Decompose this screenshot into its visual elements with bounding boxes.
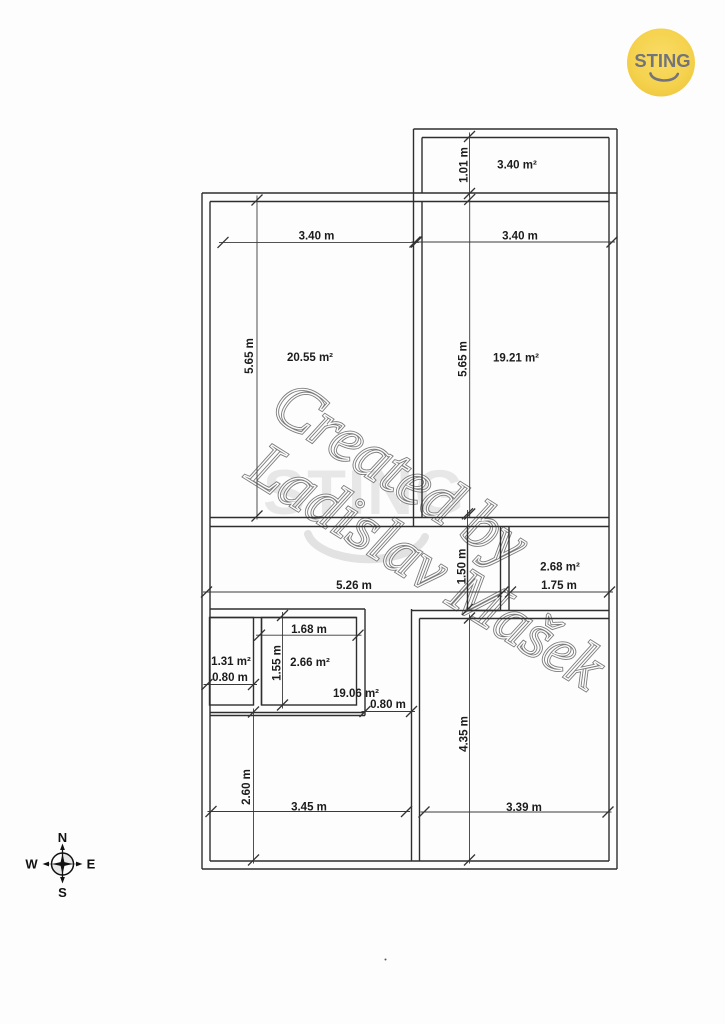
svg-text:1.50 m: 1.50 m bbox=[457, 549, 469, 585]
svg-text:5.26 m: 5.26 m bbox=[336, 580, 372, 592]
svg-text:3.40 m: 3.40 m bbox=[502, 231, 538, 243]
svg-text:1.31 m²: 1.31 m² bbox=[211, 656, 251, 668]
svg-text:0.80 m: 0.80 m bbox=[370, 699, 406, 711]
svg-text:E: E bbox=[87, 857, 96, 872]
svg-text:3.40 m: 3.40 m bbox=[299, 231, 335, 243]
svg-text:1.68 m: 1.68 m bbox=[291, 624, 327, 636]
svg-text:2.60 m: 2.60 m bbox=[241, 769, 253, 805]
svg-text:S: S bbox=[58, 885, 67, 900]
svg-text:2.68 m²: 2.68 m² bbox=[540, 562, 580, 574]
svg-text:0.80 m: 0.80 m bbox=[212, 672, 248, 684]
svg-text:1.75 m: 1.75 m bbox=[541, 580, 577, 592]
svg-text:3.39 m: 3.39 m bbox=[506, 802, 542, 814]
svg-text:5.65 m: 5.65 m bbox=[244, 338, 256, 374]
svg-text:1.55 m: 1.55 m bbox=[272, 645, 284, 681]
svg-text:STING: STING bbox=[634, 50, 690, 71]
svg-text:4.35 m: 4.35 m bbox=[459, 716, 471, 752]
svg-text:3.45 m: 3.45 m bbox=[291, 802, 327, 814]
svg-text:5.65 m: 5.65 m bbox=[458, 341, 470, 377]
svg-text:19.21 m²: 19.21 m² bbox=[493, 353, 539, 365]
svg-text:3.40 m²: 3.40 m² bbox=[497, 160, 537, 172]
svg-text:N: N bbox=[58, 830, 67, 845]
svg-text:W: W bbox=[25, 857, 38, 872]
svg-text:2.66 m²: 2.66 m² bbox=[290, 657, 330, 669]
svg-text:20.55 m²: 20.55 m² bbox=[287, 352, 333, 364]
svg-text:1.01 m: 1.01 m bbox=[459, 147, 471, 183]
